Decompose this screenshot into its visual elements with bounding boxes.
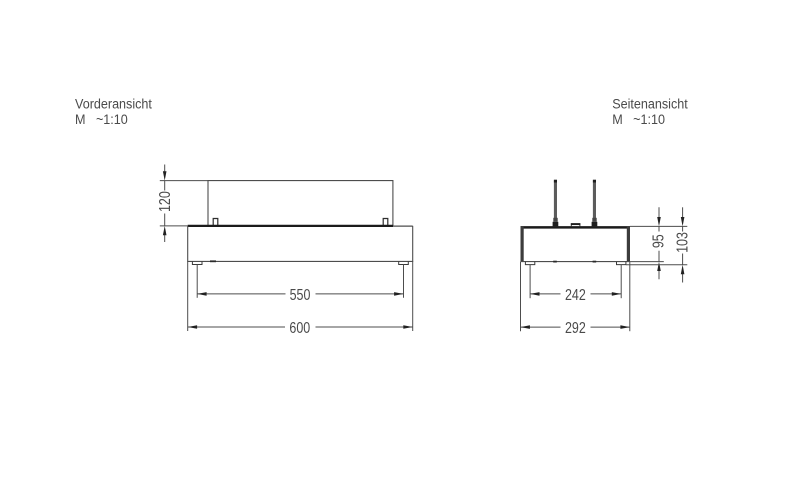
svg-text:550: 550 <box>290 287 311 305</box>
svg-text:292: 292 <box>565 320 586 338</box>
svg-text:242: 242 <box>565 287 586 305</box>
svg-text:M ~1:10: M ~1:10 <box>75 111 128 127</box>
svg-text:Seitenansicht: Seitenansicht <box>612 96 688 112</box>
svg-text:Vorderansicht: Vorderansicht <box>75 96 152 112</box>
svg-text:600: 600 <box>289 320 310 338</box>
svg-text:95: 95 <box>650 234 668 248</box>
svg-text:103: 103 <box>674 232 692 253</box>
svg-text:120: 120 <box>157 191 175 212</box>
svg-text:M ~1:10: M ~1:10 <box>612 111 665 127</box>
